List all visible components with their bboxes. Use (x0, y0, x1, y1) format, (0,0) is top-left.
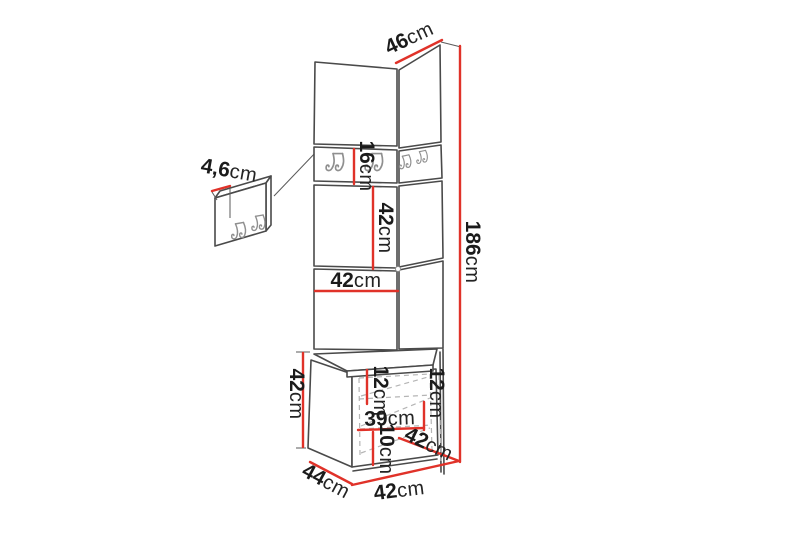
label-bottom-compartment: 10cm (375, 423, 398, 474)
cabinet-side-face (308, 360, 352, 467)
label-bench-height: 42cm (285, 368, 308, 419)
joint-dot (396, 267, 401, 272)
label-bench-depth-side: 44cm (298, 459, 354, 503)
side-panel-top-section (399, 45, 441, 148)
side-panel-low-section (399, 261, 443, 349)
callout-connector-line (274, 151, 317, 196)
label-panel-width: 42cm (330, 269, 381, 292)
furniture-dimension-diagram: 46cm 186cm 4,6cm 16cm 42cm 42cm 42cm 12c… (0, 0, 800, 533)
label-top-compartment-right: 12cm (425, 367, 448, 418)
label-total-height: 186cm (461, 221, 484, 284)
wall-hook-panel (215, 176, 271, 246)
side-panel-hook-section (399, 145, 442, 183)
front-panel-top-section (314, 62, 397, 146)
diagram-canvas: 46cm 186cm 4,6cm 16cm 42cm 42cm 42cm 12c… (0, 0, 800, 533)
label-bench-width: 42cm (372, 476, 425, 505)
label-middle-panel-height: 42cm (374, 202, 397, 253)
side-panel-mid-section (399, 181, 443, 267)
label-panel-thickness: 4,6cm (199, 154, 259, 187)
label-hook-strip-height: 16cm (355, 140, 378, 191)
